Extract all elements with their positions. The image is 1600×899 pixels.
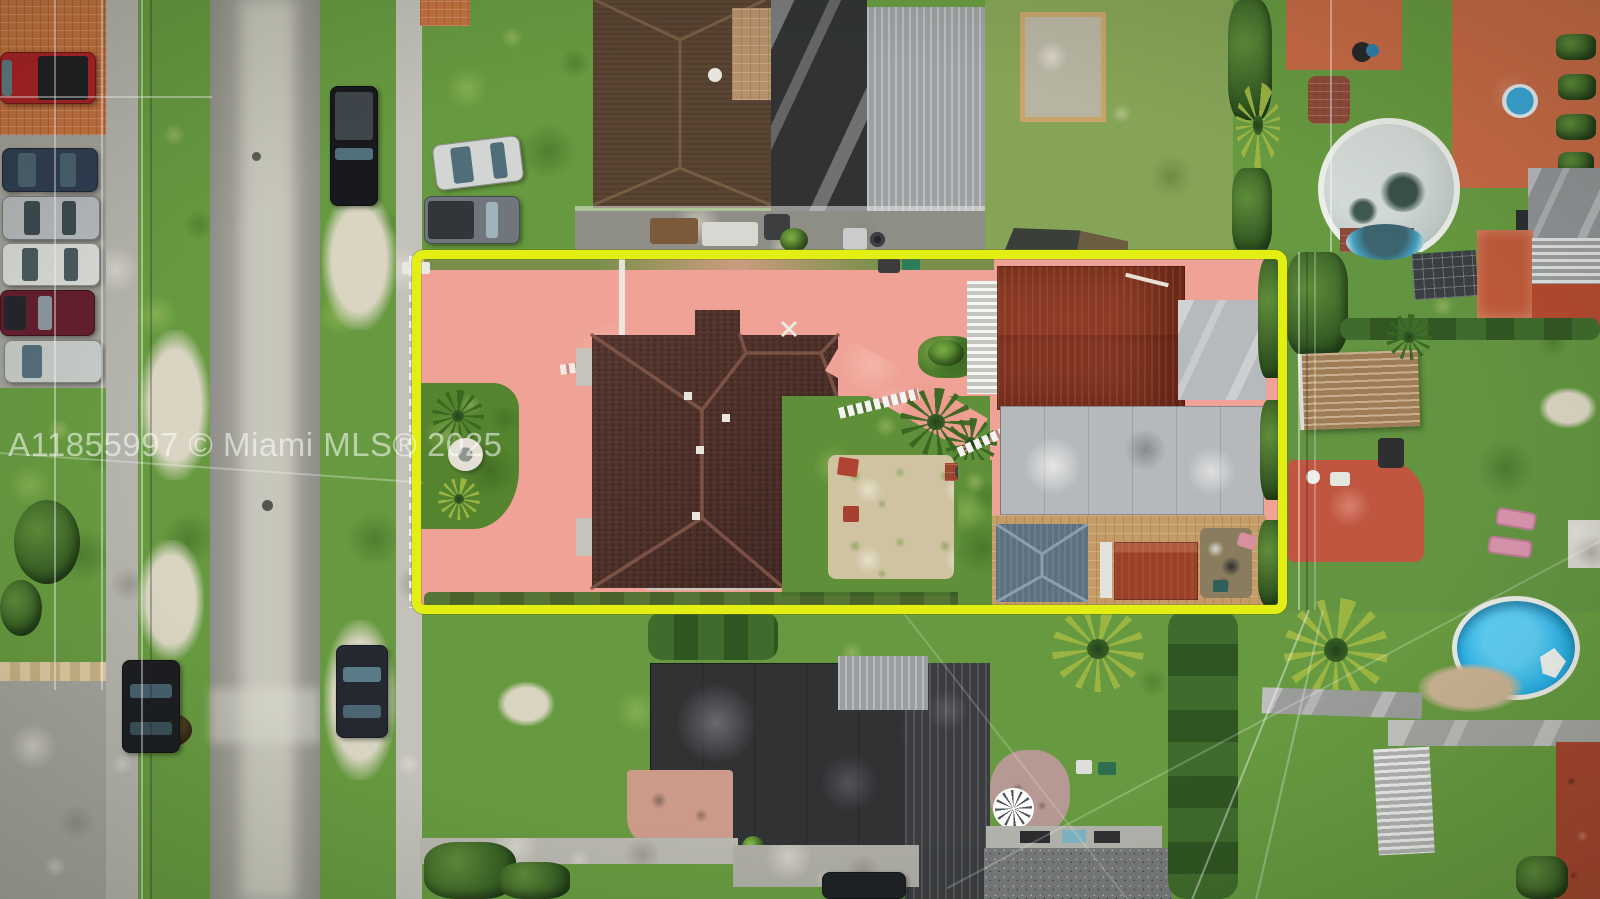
kiddie-pool bbox=[1502, 84, 1538, 118]
limestone-patch bbox=[498, 682, 554, 726]
corrugated-metal-roof bbox=[867, 7, 985, 212]
white-box bbox=[1076, 760, 1092, 774]
bush bbox=[0, 580, 42, 636]
solar-panel bbox=[1411, 250, 1478, 300]
tree-clump bbox=[1286, 252, 1348, 356]
white-towels bbox=[1540, 388, 1596, 428]
bush bbox=[14, 500, 80, 584]
blue-bucket bbox=[1366, 44, 1379, 57]
patio-umbrella bbox=[995, 790, 1032, 827]
limestone-patch bbox=[138, 540, 204, 660]
carport-strip-a bbox=[1262, 687, 1423, 719]
parked-gray-pickup bbox=[424, 196, 520, 244]
wood-frame bbox=[1020, 12, 1106, 122]
east-palm bbox=[1386, 314, 1432, 360]
green-cooler-2 bbox=[1098, 762, 1116, 775]
agave-plant bbox=[780, 228, 808, 252]
gray-metal-roof-ne bbox=[1532, 238, 1600, 284]
windshield bbox=[2, 60, 12, 96]
brick-patch bbox=[420, 0, 470, 26]
orange-building bbox=[1477, 230, 1533, 318]
pool-debris bbox=[1380, 172, 1426, 212]
parked-silver-car-2 bbox=[4, 340, 102, 383]
south-bushes bbox=[500, 862, 570, 899]
south-patio bbox=[627, 770, 733, 846]
parked-navy-car bbox=[2, 148, 98, 192]
tan-mat-on-roof bbox=[732, 8, 772, 100]
power-line bbox=[1306, 252, 1308, 610]
black-flat-roof bbox=[771, 0, 867, 212]
aerial-property-photo: A11855997 © Miami MLS® 2025 bbox=[0, 0, 1600, 899]
patio-white-chair bbox=[1306, 470, 1320, 484]
power-line bbox=[1314, 252, 1316, 610]
driveway-bottomleft bbox=[0, 681, 110, 899]
patio-white-table bbox=[1330, 472, 1350, 486]
patio-grill bbox=[1378, 438, 1404, 468]
brick-pool-wall bbox=[1308, 76, 1350, 124]
clutter-wood bbox=[650, 218, 698, 244]
tall-hedge-column bbox=[1168, 610, 1238, 899]
parked-white-car bbox=[2, 243, 100, 286]
terracotta-patio-a bbox=[1286, 0, 1402, 70]
car-at-bottom-edge bbox=[822, 872, 906, 899]
south-hedge bbox=[648, 612, 778, 660]
pool-debris bbox=[1348, 198, 1378, 224]
potted-plants-row bbox=[1556, 34, 1596, 60]
palm-tree bbox=[1236, 82, 1280, 168]
clutter-white bbox=[702, 222, 758, 246]
ac-unit bbox=[843, 228, 867, 250]
tan-shed-roof bbox=[1302, 350, 1421, 430]
lot-boundary-highlight bbox=[412, 250, 1287, 614]
truck-bed-cover bbox=[38, 56, 88, 100]
white-shed-sw bbox=[1373, 747, 1434, 856]
parked-silver-car bbox=[2, 196, 100, 240]
street-wash-band bbox=[210, 688, 320, 743]
south-palm bbox=[1052, 606, 1144, 692]
hedge-row-horiz bbox=[1340, 318, 1600, 340]
manhole bbox=[262, 500, 273, 511]
south-corrugated-section bbox=[838, 656, 928, 710]
parked-dark-car-right bbox=[336, 645, 388, 738]
parked-maroon-car bbox=[0, 290, 95, 336]
power-line bbox=[54, 0, 56, 690]
tree-row bbox=[1232, 168, 1272, 254]
power-line bbox=[101, 0, 103, 690]
power-line bbox=[1330, 0, 1332, 252]
se-bushes bbox=[1516, 856, 1568, 899]
manhole bbox=[252, 152, 261, 161]
pool-sand-ring bbox=[1418, 664, 1522, 712]
potted-plants-row bbox=[1556, 114, 1596, 140]
power-line-cross bbox=[0, 96, 212, 98]
potted-plants-row bbox=[1558, 74, 1596, 100]
mls-watermark: A11855997 © Miami MLS® 2025 bbox=[8, 426, 502, 464]
tire bbox=[870, 232, 885, 247]
power-line bbox=[1298, 252, 1300, 610]
parked-black-suv bbox=[330, 86, 378, 206]
big-yellow-palm bbox=[1284, 598, 1388, 702]
se-house-roof bbox=[984, 848, 1172, 899]
limestone-patch bbox=[322, 190, 396, 330]
